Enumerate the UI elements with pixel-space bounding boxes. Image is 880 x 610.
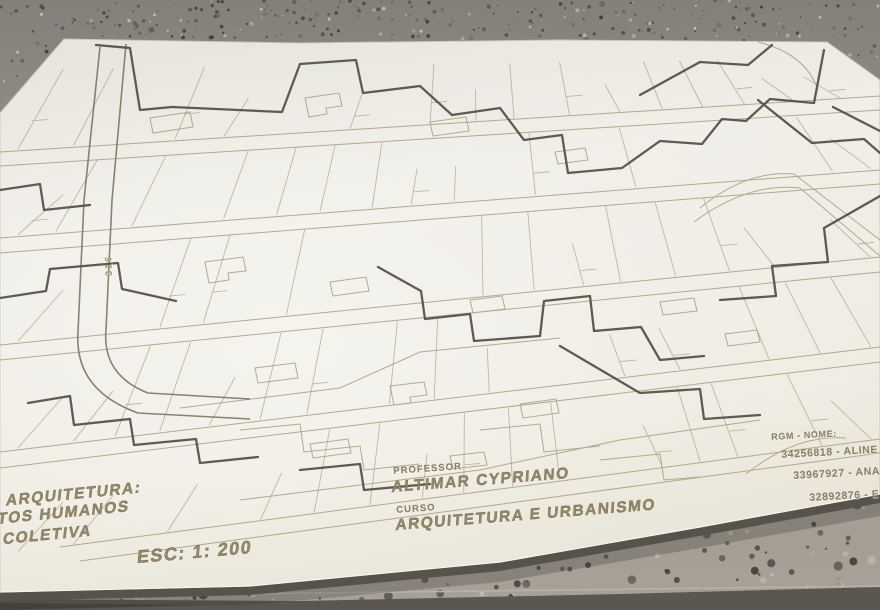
photo-scene: E ARQUITETURA: NTOS HUMANOS COLETIVA ESC… (0, 0, 880, 610)
street-number-label: 316 (103, 255, 114, 276)
